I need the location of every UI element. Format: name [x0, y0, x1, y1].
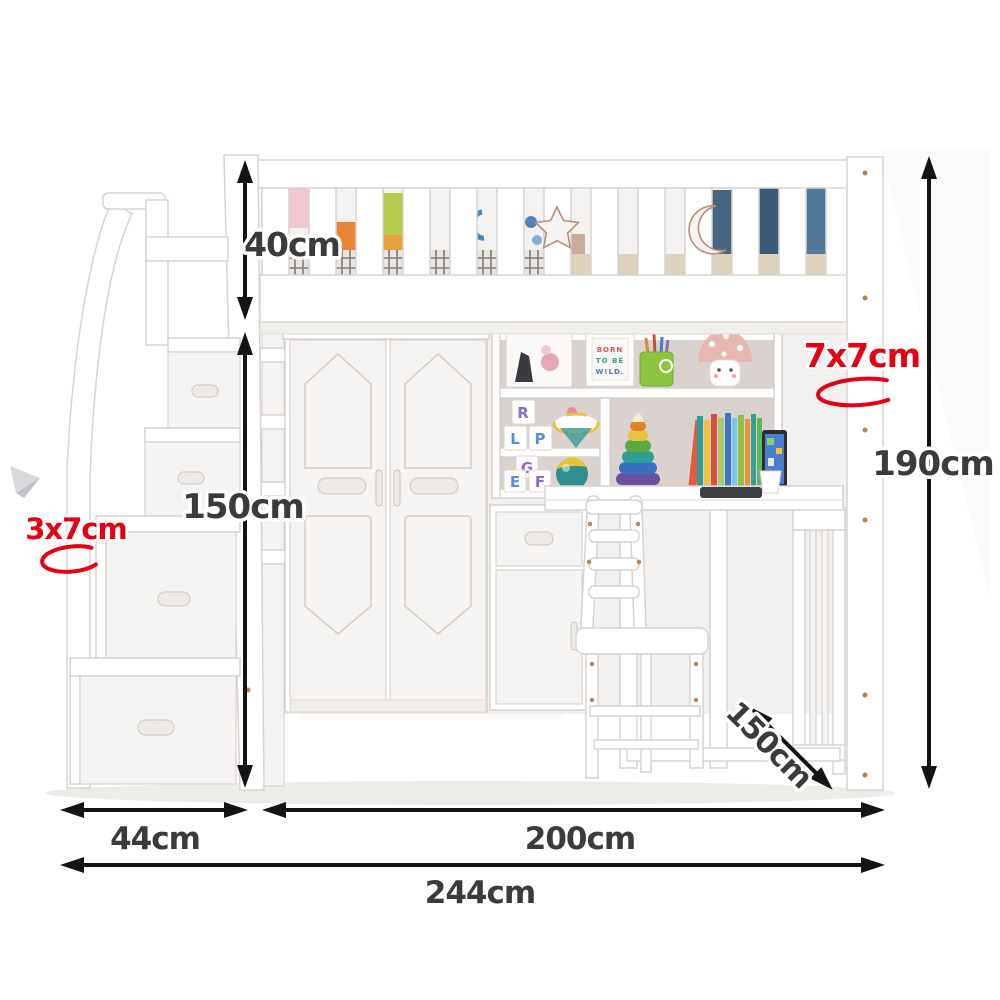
- dimension-44cm-label: 44cm: [110, 821, 200, 857]
- stair-post-size-label: 3x7cm: [25, 512, 126, 546]
- block-letter-r: R: [517, 404, 529, 422]
- shelf-unit: BORN TO BE W!LD. R L P: [492, 326, 787, 498]
- block-letter-e: E: [510, 473, 520, 491]
- block-letter-f: F: [535, 473, 545, 491]
- block-letter-p: P: [535, 430, 546, 448]
- laptop: [700, 487, 762, 498]
- paper-plane-decal: [10, 466, 40, 498]
- dimension-150cm-label: 150cm: [182, 487, 304, 527]
- dimension-244cm-label: 244cm: [425, 875, 535, 911]
- dimension-200cm-label: 200cm: [525, 821, 635, 857]
- wardrobe: [283, 326, 489, 712]
- stair-drawers: [70, 338, 240, 784]
- storage-cabinet: [490, 505, 588, 710]
- frame-text-line3: W!LD.: [596, 368, 625, 376]
- product-dimension-diagram: BORN TO BE W!LD. R L P: [0, 0, 1000, 1000]
- frame-text-line2: TO BE: [596, 357, 624, 365]
- bed-post-size-label: 7x7cm: [804, 336, 920, 375]
- wall-frame: BORN TO BE W!LD.: [586, 332, 634, 386]
- dimension-40cm-label: 40cm: [244, 225, 340, 264]
- block-letter-l: L: [510, 430, 520, 448]
- cup: [760, 471, 781, 493]
- dimension-44cm-arrow: [60, 802, 248, 818]
- dimension-190cm-label: 190cm: [872, 444, 994, 484]
- diagram-canvas: BORN TO BE W!LD. R L P: [0, 0, 1000, 1000]
- frame-text-line1: BORN: [597, 346, 624, 354]
- dimension-244cm-arrow: [60, 857, 885, 873]
- picture-book: [506, 331, 572, 387]
